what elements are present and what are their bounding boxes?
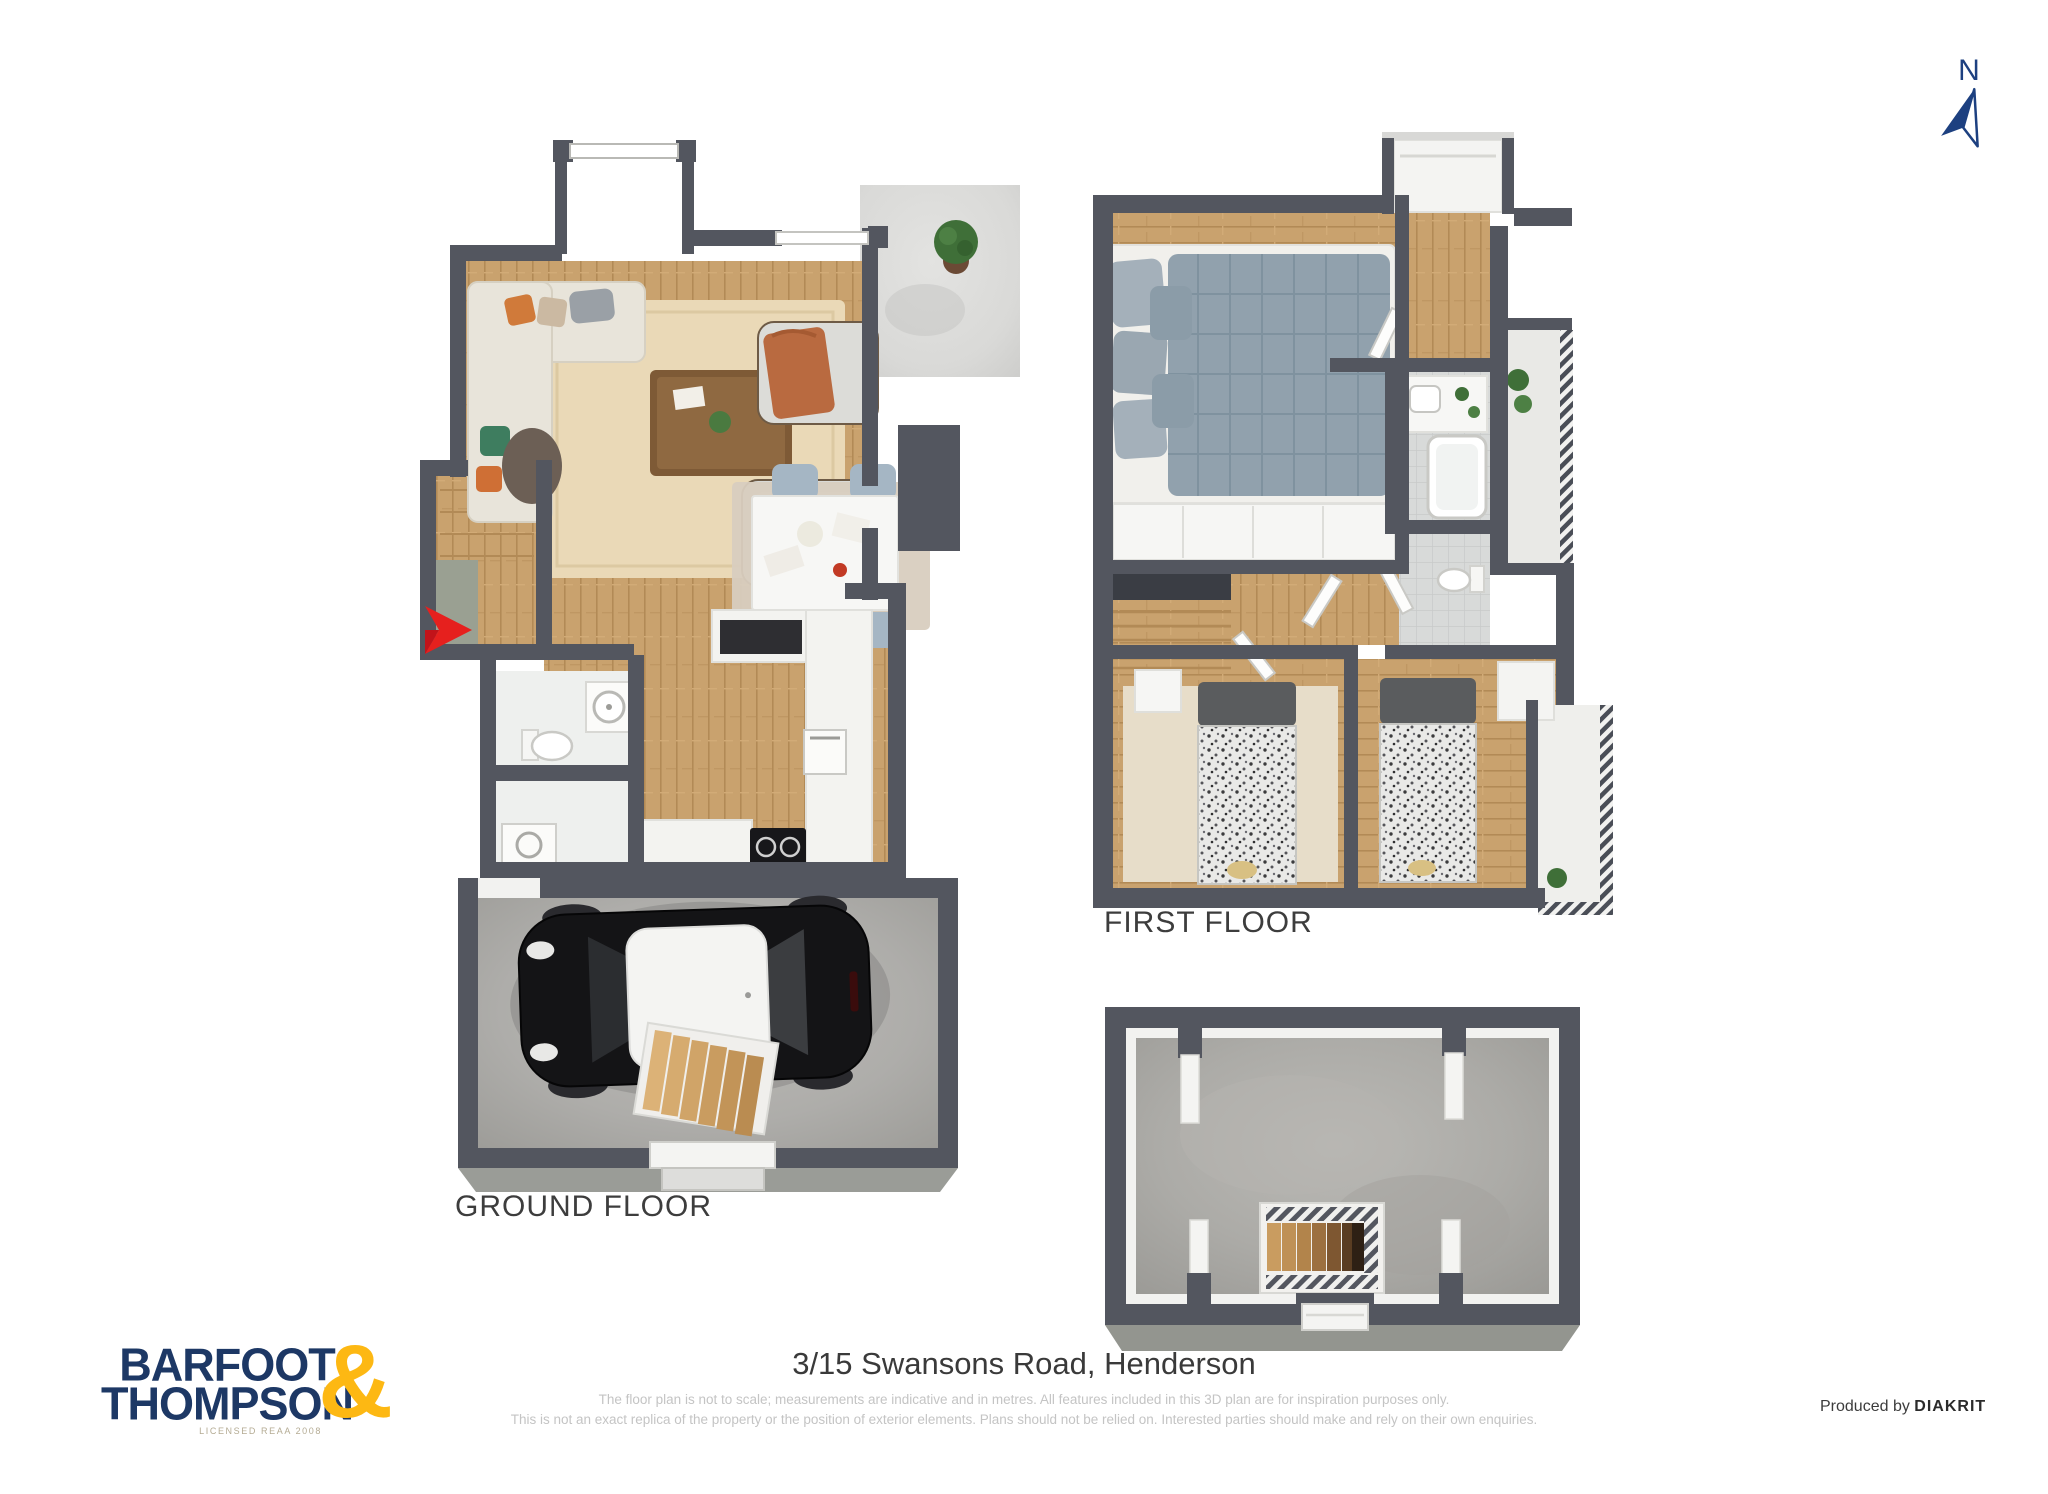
single-bed [1198, 726, 1296, 884]
producer-credit: Produced by DIAKRIT [1820, 1398, 1986, 1416]
balcony-plant-icon [1507, 369, 1529, 391]
entry-arrow-icon [424, 604, 476, 656]
cooktop [750, 828, 806, 866]
single-bed-head [1198, 682, 1296, 726]
basement-plan [1090, 995, 1610, 1365]
ground-floor-plan [420, 130, 1020, 1210]
ground-floor-label: GROUND FLOOR [455, 1190, 712, 1224]
fur-throw [502, 428, 562, 504]
potted-plant-icon [934, 220, 978, 264]
first-floor-label: FIRST FLOOR [1104, 906, 1313, 940]
disclaimer-line2: This is not an exact replica of the prop… [0, 1412, 2048, 1427]
entry-patio [860, 185, 1020, 377]
balcony-railing [1560, 330, 1573, 575]
property-address: 3/15 Swansons Road, Henderson [0, 1346, 2048, 1382]
gray-throw [568, 288, 615, 324]
orange-blanket [762, 326, 835, 420]
master-bedroom [1105, 245, 1395, 560]
logo-tagline: LICENSED REAA 2008 [199, 1426, 322, 1436]
bedroom-2 [1123, 670, 1338, 884]
toilet [1438, 569, 1470, 591]
garage-door [650, 1142, 775, 1168]
compass: N [1926, 56, 2006, 156]
north-arrow-icon [1937, 86, 1995, 150]
first-floor-plan [1080, 130, 1620, 920]
balcony-plant-icon [1547, 868, 1567, 888]
bedside-table [1135, 670, 1181, 712]
wc-room [1399, 534, 1490, 645]
compass-north-label: N [1932, 56, 2006, 86]
lower-balcony [1538, 705, 1613, 915]
produced-by-text: Produced by [1820, 1398, 1914, 1415]
orange-pillow [503, 293, 536, 326]
upper-balcony [1507, 318, 1573, 575]
armchair-top [758, 322, 878, 424]
basin [1410, 386, 1440, 412]
producer-name: DIAKRIT [1914, 1398, 1986, 1415]
flower-decor [833, 563, 847, 577]
patio-door [776, 232, 868, 244]
toilet [532, 732, 572, 760]
floor-plan-page: N [0, 0, 2048, 1494]
washing-machine [502, 824, 556, 866]
disclaimer-line1: The floor plan is not to scale; measurem… [0, 1392, 2048, 1407]
single-bed [1380, 724, 1476, 882]
laundry [496, 781, 628, 866]
table-plant-icon [709, 411, 731, 433]
bathroom [1399, 372, 1490, 520]
garage [458, 872, 958, 1192]
window [570, 144, 678, 158]
toilet-room [496, 671, 632, 767]
dining-chair [772, 464, 818, 500]
basement-entry-step [1302, 1304, 1368, 1330]
